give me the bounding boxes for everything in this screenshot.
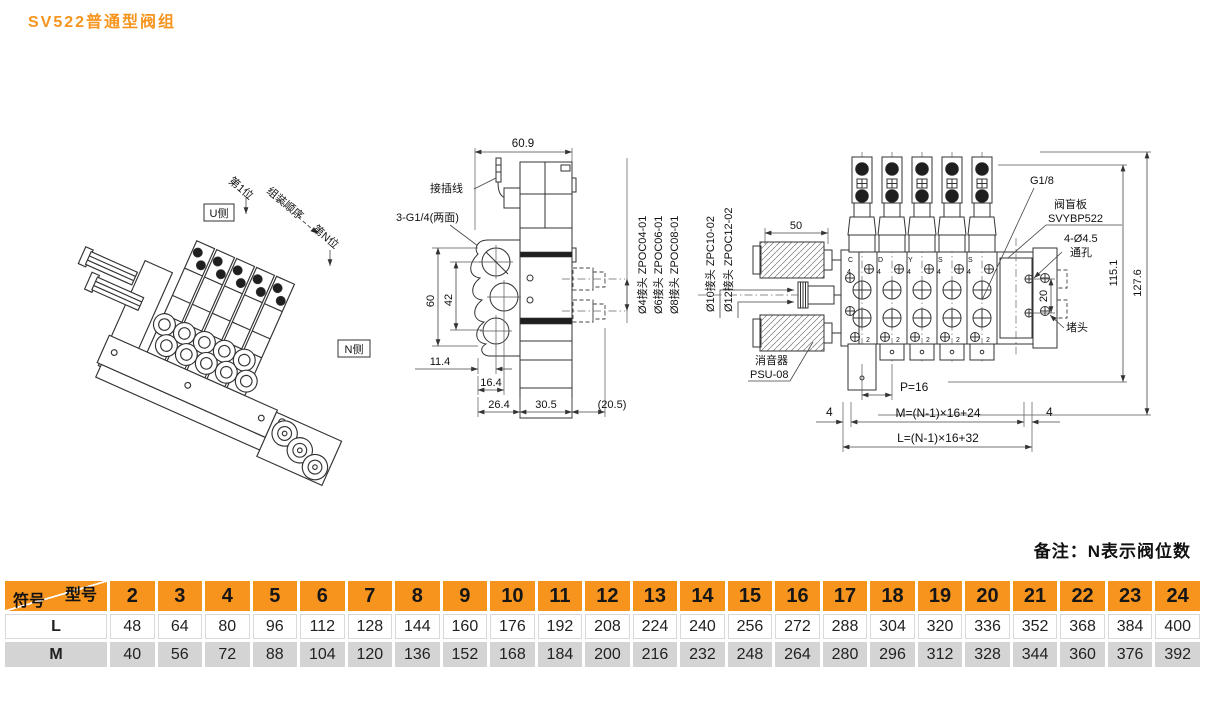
value-cell: 104	[300, 642, 345, 667]
value-cell: 384	[1108, 614, 1153, 639]
value-cell: 144	[395, 614, 440, 639]
dim-20: 20	[1038, 290, 1050, 302]
value-cell: 320	[918, 614, 963, 639]
dim-50: 50	[790, 220, 802, 232]
page-title: SV522普通型阀组	[28, 8, 176, 32]
label-u-side: U侧	[210, 207, 229, 220]
value-cell: 120	[348, 642, 393, 667]
model-header-cell: 14	[680, 581, 725, 611]
port-mark-2: 2	[866, 337, 870, 344]
value-cell: 184	[538, 642, 583, 667]
dim-60: 60	[425, 295, 437, 307]
label-g18: G1/8	[1030, 175, 1054, 187]
value-cell: 192	[538, 614, 583, 639]
value-cell: 176	[490, 614, 535, 639]
station-letter: S	[968, 257, 973, 264]
port-mark-2: 2	[926, 337, 930, 344]
value-cell: 72	[205, 642, 250, 667]
value-cell: 248	[728, 642, 773, 667]
model-header-cell: 22	[1060, 581, 1105, 611]
value-cell: 96	[253, 614, 298, 639]
dim-m-formula: M=(N-1)×16+24	[895, 406, 980, 420]
port-mark-4: 4	[967, 269, 971, 276]
muffler-bottom	[753, 315, 841, 351]
value-cell: 256	[728, 614, 773, 639]
model-header-cell: 23	[1108, 581, 1153, 611]
table-corner-cell: 型号 符号	[5, 581, 107, 611]
value-cell: 160	[443, 614, 488, 639]
dimension-table: 型号 符号 2345678910111213141516171819202122…	[2, 578, 1203, 670]
model-header-cell: 6	[300, 581, 345, 611]
muffler-top	[753, 242, 841, 278]
port-mark-2: 2	[956, 337, 960, 344]
port-mark-4: 4	[937, 269, 941, 276]
label-hole-spec: 4-Ø4.5	[1064, 233, 1098, 245]
dim-11-4: 11.4	[430, 356, 451, 368]
label-n-side: N侧	[345, 343, 364, 356]
value-cell: 360	[1060, 642, 1105, 667]
label-fitting-d6: Ø6接头 ZPOC06-01	[652, 216, 665, 314]
table-header-row: 型号 符号 2345678910111213141516171819202122…	[5, 581, 1200, 611]
station-letter: D	[878, 257, 883, 264]
value-cell: 136	[395, 642, 440, 667]
station-letter: C	[848, 257, 853, 264]
value-cell: 88	[253, 642, 298, 667]
model-header-cell: 18	[870, 581, 915, 611]
model-header-cell: 9	[443, 581, 488, 611]
side-wire	[496, 158, 520, 208]
label-fitting-d4: Ø4接头 ZPOC04-01	[636, 216, 649, 314]
dim-127-6: 127.6	[1132, 269, 1144, 297]
model-header-cell: 7	[348, 581, 393, 611]
model-header-cell: 20	[965, 581, 1010, 611]
corner-label-model: 型号	[65, 581, 97, 605]
dim-42: 42	[443, 294, 455, 306]
value-cell: 328	[965, 642, 1010, 667]
value-cell: 48	[110, 614, 155, 639]
dim-16-4: 16.4	[480, 377, 501, 389]
datasheet-page: SV522普通型阀组 第1位 U侧 组装顺序 第N位 N侧	[0, 0, 1205, 701]
dim-60-9: 60.9	[512, 138, 534, 150]
label-assembly-order: 组装顺序	[264, 184, 307, 223]
value-cell: 368	[1060, 614, 1105, 639]
label-muffler-model: PSU-08	[750, 369, 789, 381]
isometric-view-drawing: 第1位 U侧 组装顺序 第N位 N侧	[20, 148, 390, 493]
station-letter: Y	[908, 257, 913, 264]
row-label-L: L	[5, 614, 107, 639]
model-header-cell: 2	[110, 581, 155, 611]
supply-fitting	[698, 282, 841, 308]
value-cell: 80	[205, 614, 250, 639]
model-header-cell: 4	[205, 581, 250, 611]
value-cell: 392	[1155, 642, 1200, 667]
label-position-1: 第1位	[226, 174, 257, 203]
value-cell: 312	[918, 642, 963, 667]
plug-dashed-2	[1057, 300, 1067, 318]
model-header-cell: 19	[918, 581, 963, 611]
dim-l-formula: L=(N-1)×16+32	[897, 431, 979, 445]
port-mark-4: 4	[907, 269, 911, 276]
port-mark-4: 4	[847, 269, 851, 276]
label-fitting-d8: Ø8接头 ZPOC08-01	[668, 216, 681, 314]
value-cell: 64	[158, 614, 203, 639]
value-cell: 208	[585, 614, 630, 639]
port-mark-2: 2	[896, 337, 900, 344]
value-cell: 240	[680, 614, 725, 639]
value-cell: 56	[158, 642, 203, 667]
model-header-cell: 12	[585, 581, 630, 611]
value-cell: 272	[775, 614, 820, 639]
side-valve-body	[520, 162, 576, 418]
side-view-drawing: 60.9 接插线 3-G1/4(两面)	[390, 128, 700, 428]
label-position-n: 第N位	[310, 222, 342, 252]
dim-4-right: 4	[1046, 405, 1053, 419]
value-cell: 336	[965, 614, 1010, 639]
value-cell: 304	[870, 614, 915, 639]
value-cell: 216	[633, 642, 678, 667]
row-label-M: M	[5, 642, 107, 667]
value-cell: 352	[1013, 614, 1058, 639]
dim-pitch: P=16	[900, 380, 929, 394]
model-header-cell: 13	[633, 581, 678, 611]
value-cell: 40	[110, 642, 155, 667]
value-cell: 168	[490, 642, 535, 667]
table-row-M: M 40567288104120136152168184200216232248…	[5, 642, 1200, 667]
dimension-table-wrap: 型号 符号 2345678910111213141516171819202122…	[2, 578, 1203, 670]
model-header-cell: 11	[538, 581, 583, 611]
model-header-cell: 15	[728, 581, 773, 611]
model-header-cell: 21	[1013, 581, 1058, 611]
model-header-cell: 24	[1155, 581, 1200, 611]
port-mark-2: 2	[986, 337, 990, 344]
note-text: 备注：N表示阀位数	[1034, 537, 1191, 562]
value-cell: 200	[585, 642, 630, 667]
value-cell: 344	[1013, 642, 1058, 667]
dim-20-5: (20.5)	[598, 399, 627, 411]
side-end-plate	[471, 240, 521, 356]
value-cell: 152	[443, 642, 488, 667]
plug-dashed-1	[1057, 270, 1067, 288]
table-row-L: L 48648096112128144160176192208224240256…	[5, 614, 1200, 639]
model-header-cell: 10	[490, 581, 535, 611]
port-mark-4: 4	[877, 269, 881, 276]
dim-4-left: 4	[826, 405, 833, 419]
value-cell: 376	[1108, 642, 1153, 667]
label-plug: 堵头	[1066, 320, 1088, 334]
label-through-hole: 通孔	[1070, 246, 1092, 259]
value-cell: 400	[1155, 614, 1200, 639]
model-header-cell: 3	[158, 581, 203, 611]
value-cell: 232	[680, 642, 725, 667]
station-letter: S	[938, 257, 943, 264]
label-blank-plate-model: SVYBP522	[1048, 213, 1103, 225]
corner-label-symbol: 符号	[13, 587, 45, 611]
value-cell: 264	[775, 642, 820, 667]
label-fitting-d10: Ø10接头 ZPC10-02	[704, 216, 717, 312]
dim-115-1: 115.1	[1108, 260, 1120, 287]
manifold-left-endplate	[841, 250, 859, 346]
value-cell: 288	[823, 614, 868, 639]
label-fitting-d12: Ø12接头 ZPOC12-02	[722, 207, 735, 312]
model-header-cell: 16	[775, 581, 820, 611]
value-cell: 128	[348, 614, 393, 639]
value-cell: 296	[870, 642, 915, 667]
label-wire: 接插线	[430, 181, 463, 195]
model-header-cell: 17	[823, 581, 868, 611]
value-cell: 112	[300, 614, 345, 639]
value-cell: 224	[633, 614, 678, 639]
value-cell: 280	[823, 642, 868, 667]
model-header-cell: 8	[395, 581, 440, 611]
model-header-cell: 5	[253, 581, 298, 611]
dim-26-4: 26.4	[488, 399, 509, 411]
label-muffler: 消音器	[755, 353, 788, 367]
top-view-drawing: Ø10接头 ZPC10-02 Ø12接头 ZPOC12-02 50 消	[698, 132, 1178, 467]
label-blank-plate: 阀盲板	[1054, 197, 1087, 211]
label-thread: 3-G1/4(两面)	[396, 212, 459, 224]
dim-30-5: 30.5	[535, 399, 556, 411]
